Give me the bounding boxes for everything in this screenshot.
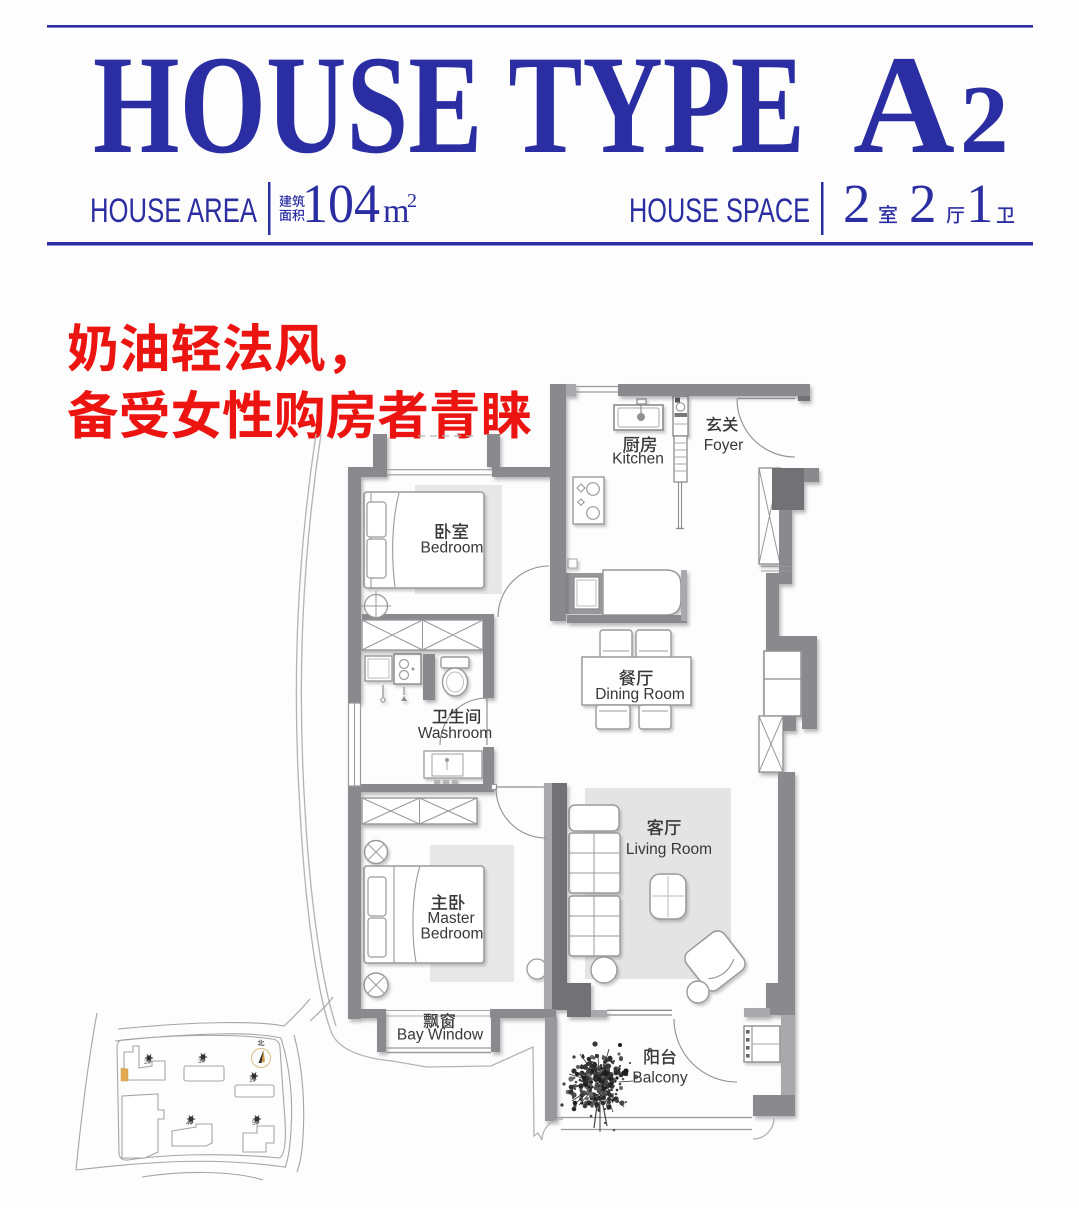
svg-text:2: 2 <box>407 190 417 212</box>
svg-text:Bedroom: Bedroom <box>421 540 484 557</box>
svg-text:Balcony: Balcony <box>632 1070 687 1087</box>
svg-text:1#: 1# <box>249 1077 257 1084</box>
svg-text:HOUSE AREA: HOUSE AREA <box>90 192 257 230</box>
svg-text:Dining Room: Dining Room <box>595 686 685 703</box>
svg-text:104: 104 <box>302 173 380 234</box>
svg-text:m: m <box>383 193 409 230</box>
svg-text:2: 2 <box>960 66 1009 173</box>
svg-text:HOUSE SPACE: HOUSE SPACE <box>629 192 810 230</box>
svg-text:5#: 5# <box>252 1120 260 1127</box>
svg-text:Foyer: Foyer <box>704 437 744 454</box>
svg-text:Master: Master <box>427 910 474 927</box>
svg-text:A: A <box>853 27 955 183</box>
svg-text:2#: 2# <box>144 1059 152 1066</box>
svg-text:1: 1 <box>966 173 994 234</box>
svg-text:3#: 3# <box>198 1058 206 1065</box>
svg-text:Kitchen: Kitchen <box>612 451 664 468</box>
svg-text:4#: 4# <box>186 1120 194 1127</box>
svg-text:Living Room: Living Room <box>626 841 712 858</box>
svg-text:Bedroom: Bedroom <box>421 926 484 943</box>
svg-text:2: 2 <box>843 173 871 234</box>
svg-text:HOUSE TYPE: HOUSE TYPE <box>93 27 805 183</box>
svg-text:2: 2 <box>909 173 937 234</box>
svg-text:Bay Window: Bay Window <box>397 1027 484 1044</box>
svg-text:Washroom: Washroom <box>418 725 492 742</box>
